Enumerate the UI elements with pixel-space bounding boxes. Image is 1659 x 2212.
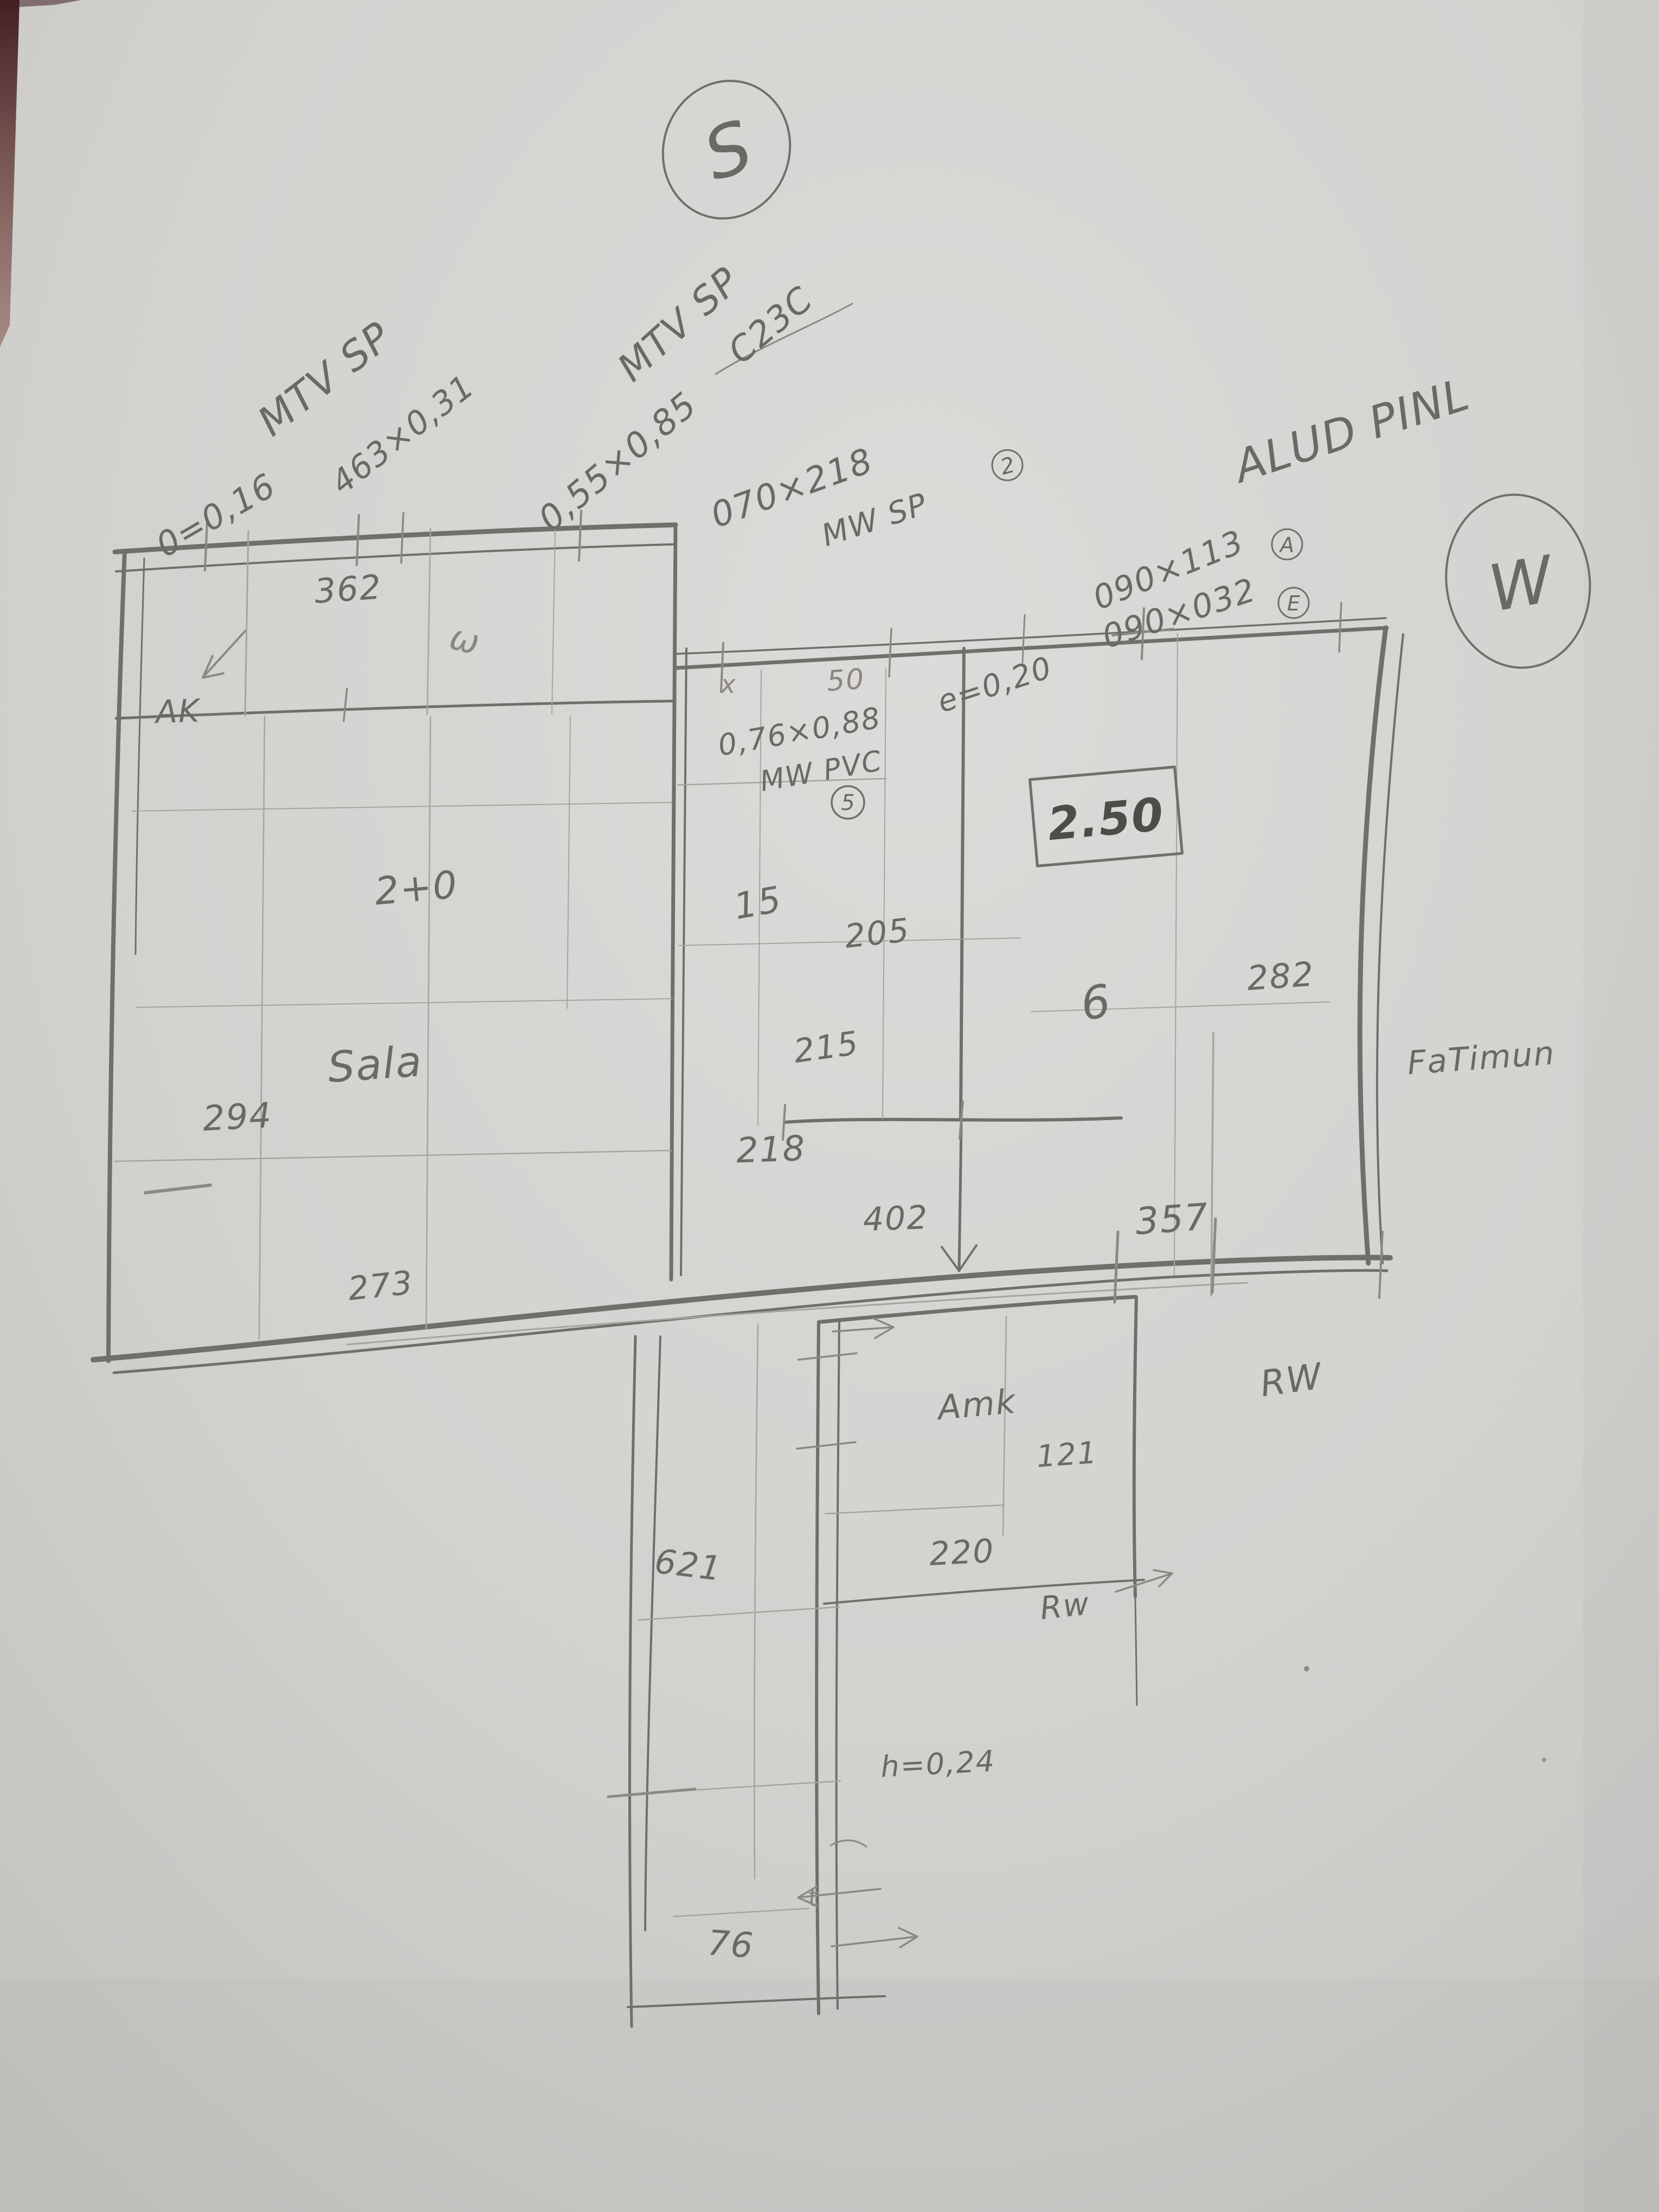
label-rw-upper: RW [1258,1355,1326,1405]
dim-76: 76 [706,1923,755,1966]
dim-273: 273 [346,1264,415,1308]
dim-362: 362 [313,567,383,611]
paper-shadow-right [1583,0,1659,2212]
room-label-amk: Amk [934,1381,1018,1428]
dim-50: 50 [826,663,866,698]
dim-218: 218 [736,1129,807,1171]
paper-shadow-bottom [0,1979,1659,2212]
room-label-sala: Sala [326,1037,425,1092]
dim-121: 121 [1036,1435,1099,1475]
spec-win5-badge: 5 [841,790,854,815]
dim-294: 294 [202,1096,273,1140]
dim-220: 220 [928,1532,995,1573]
dim-357: 357 [1134,1195,1211,1243]
dim-621: 621 [653,1541,724,1589]
label-ak: AK [153,692,202,731]
dim-250-boxed: 2.50 [1045,788,1166,851]
dim-402: 402 [863,1199,929,1239]
floorplan-sketch: S W MTV SP 0=0,16 463×0,31 MTV SP 0,55×0… [0,0,1659,2212]
dim-270: 2+0 [373,862,460,914]
pencil-dot [1304,1666,1309,1671]
photo-of-floorplan-sketch: S W MTV SP 0=0,16 463×0,31 MTV SP 0,55×0… [0,0,1659,2212]
spec-winA-badge: A [1278,533,1294,557]
dim-15: 15 [731,878,785,928]
label-rw-lower: Rw [1038,1585,1091,1626]
spec-winE-badge: E [1287,591,1300,615]
pencil-dot [1542,1758,1546,1762]
mark-x: x [719,670,736,699]
label-h024: h=0,24 [880,1744,996,1784]
dim-205: 205 [843,911,912,956]
dim-282: 282 [1246,954,1316,998]
